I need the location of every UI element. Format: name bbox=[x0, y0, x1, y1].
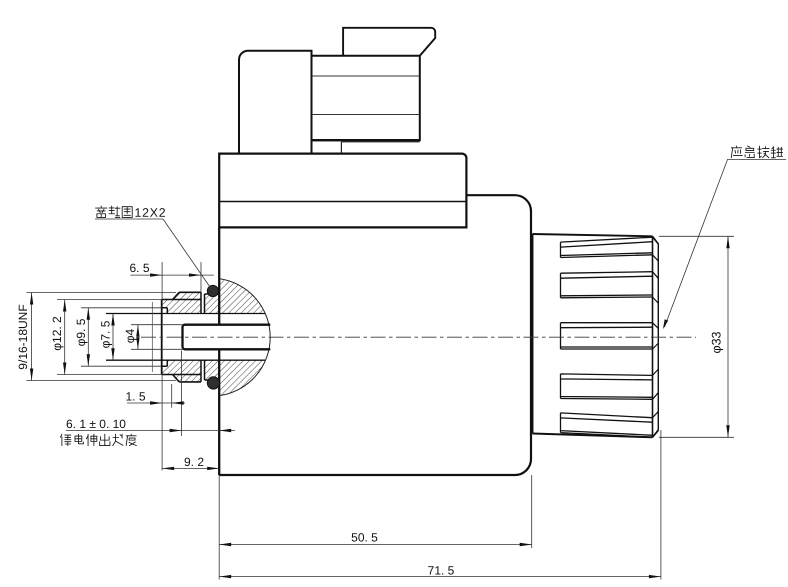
svg-text:φ9. 5: φ9. 5 bbox=[74, 318, 88, 346]
svg-text:φ7. 5: φ7. 5 bbox=[99, 320, 113, 348]
svg-text:71. 5: 71. 5 bbox=[428, 563, 455, 577]
svg-text:50. 5: 50. 5 bbox=[351, 530, 378, 544]
svg-text:φ33: φ33 bbox=[710, 331, 724, 353]
svg-text:9. 2: 9. 2 bbox=[184, 455, 204, 469]
svg-text:9/16-18UNF: 9/16-18UNF bbox=[16, 304, 30, 369]
svg-text:6. 5: 6. 5 bbox=[129, 261, 149, 275]
svg-text:φ12. 2: φ12. 2 bbox=[50, 316, 64, 351]
svg-text:φ4: φ4 bbox=[123, 328, 137, 343]
svg-text:6. 1 ± 0. 10: 6. 1 ± 0. 10 bbox=[66, 417, 126, 431]
svg-text:12X2: 12X2 bbox=[134, 206, 166, 220]
svg-text:1. 5: 1. 5 bbox=[125, 389, 145, 403]
